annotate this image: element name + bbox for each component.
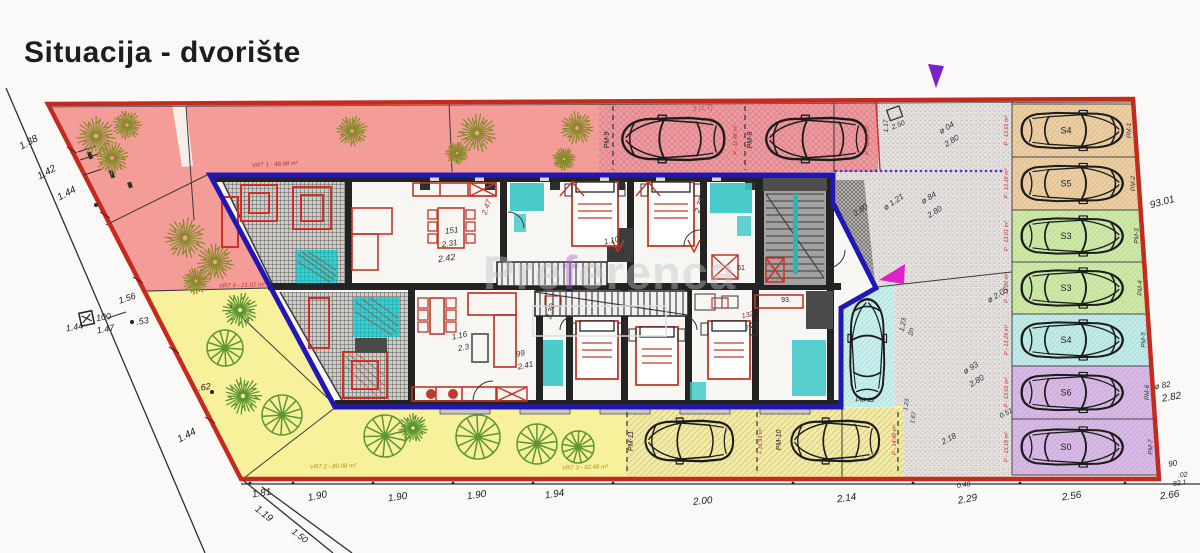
svg-text:S3: S3 xyxy=(1060,283,1071,293)
svg-text:P - 13.18 m²: P - 13.18 m² xyxy=(1004,168,1010,198)
svg-text:.53: .53 xyxy=(135,315,149,327)
svg-text:1.17: 1.17 xyxy=(883,119,890,132)
svg-text:PM-3: PM-3 xyxy=(1133,228,1140,244)
svg-text:PM-7: PM-7 xyxy=(1148,439,1155,455)
svg-text:PM-2: PM-2 xyxy=(1130,175,1137,191)
svg-text:PM-12: PM-12 xyxy=(855,397,875,404)
svg-text:PM-8: PM-8 xyxy=(747,132,754,149)
svg-text:Situacija - dvorište: Situacija - dvorište xyxy=(24,36,301,69)
svg-text:S5: S5 xyxy=(1060,179,1071,189)
svg-text:90: 90 xyxy=(1168,458,1179,468)
svg-text:Preferenca: Preferenca xyxy=(483,246,736,299)
svg-text:S6: S6 xyxy=(1060,388,1071,398)
svg-text:.02: .02 xyxy=(1177,471,1188,479)
svg-text:PM-1: PM-1 xyxy=(1126,122,1133,138)
svg-text:61: 61 xyxy=(737,265,745,272)
svg-text:151: 151 xyxy=(444,225,458,236)
svg-text:P - 13.01 m²: P - 13.01 m² xyxy=(1004,115,1010,145)
svg-text:+ 16.93 m²: + 16.93 m² xyxy=(758,428,764,455)
svg-text:PM-10: PM-10 xyxy=(776,430,783,451)
svg-text:P - 11.37 m²: P - 11.37 m² xyxy=(865,125,871,155)
svg-text:PM-11: PM-11 xyxy=(628,431,635,451)
svg-text:93.: 93. xyxy=(781,297,791,304)
svg-text:2.00: 2.00 xyxy=(692,495,714,508)
svg-text:PM-6: PM-6 xyxy=(1144,384,1151,400)
svg-text:PM-4: PM-4 xyxy=(1137,280,1144,296)
svg-text:P - 14.48 m²: P - 14.48 m² xyxy=(892,425,898,455)
svg-text:PM-5: PM-5 xyxy=(1140,332,1147,348)
svg-text:P - 13.29 m²: P - 13.29 m² xyxy=(1004,325,1010,355)
svg-text:S4: S4 xyxy=(1060,126,1071,136)
svg-text:PM-9: PM-9 xyxy=(604,132,611,149)
svg-text:P - 13.18 m²: P - 13.18 m² xyxy=(1004,432,1010,462)
svg-text:S4: S4 xyxy=(1060,335,1071,345)
svg-text:P - 13.01 m²: P - 13.01 m² xyxy=(1004,377,1010,407)
svg-text:.62: .62 xyxy=(197,381,211,393)
svg-text:S3: S3 xyxy=(1060,231,1071,241)
svg-text:P - 11.48 m²: P - 11.48 m² xyxy=(733,125,739,155)
svg-text:S0: S0 xyxy=(1060,442,1071,452)
svg-text:P - 13.01 m²: P - 13.01 m² xyxy=(1004,221,1010,251)
